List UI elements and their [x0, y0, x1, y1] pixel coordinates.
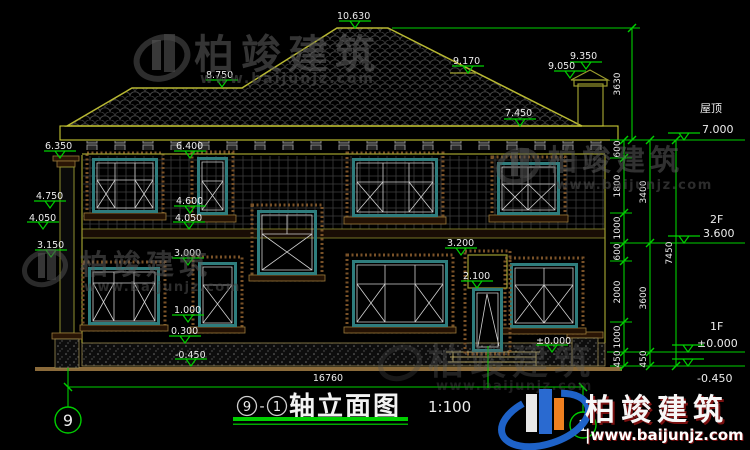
watermark-brand-right: 柏竣建筑: [548, 143, 684, 177]
roof-label: 屋顶: [700, 102, 722, 115]
level-marker-left-405: 4.050: [27, 213, 59, 229]
svg-text:6.400: 6.400: [176, 141, 203, 152]
dim-600b: 600: [613, 243, 623, 260]
title-axis-from: 9: [243, 400, 251, 415]
watermark-left: 柏竣建筑 www.baijunjz.com: [20, 246, 241, 295]
logo-url-text: |www.baijunjz.com: [585, 426, 744, 445]
dim-450a: 450: [613, 350, 623, 367]
dim-16760: 16760: [313, 373, 343, 384]
svg-text:7.450: 7.450: [505, 108, 532, 119]
watermark-url-top: www.baijunjz.com: [200, 71, 375, 87]
svg-text:4.750: 4.750: [36, 191, 63, 202]
svg-text:4.050: 4.050: [175, 213, 202, 224]
svg-text:9.170: 9.170: [453, 56, 480, 67]
cad-elevation-drawing: 3630 600 1800 1000 600 2000 1000 450 340…: [0, 0, 750, 450]
eave-fascia: [60, 126, 618, 140]
svg-text:0.300: 0.300: [171, 326, 198, 337]
dim-450b: 450: [639, 350, 649, 367]
window-1f-right: [502, 258, 586, 334]
level-marker-col-capital: 6.350: [44, 141, 76, 158]
level-marker-2f: 2F 3.600: [668, 213, 735, 243]
watermark-brand-bottom: 柏竣建筑: [428, 342, 596, 383]
window-1f-center: [344, 255, 456, 333]
level-marker-1f: 1F ±0.000: [672, 320, 738, 352]
level-marker-roof-right: 屋顶 7.000: [668, 102, 734, 140]
watermark-brand-left: 柏竣建筑: [80, 248, 212, 281]
drawing-canvas: 3630 600 1800 1000 600 2000 1000 450 340…: [0, 0, 750, 450]
svg-text:4.050: 4.050: [29, 213, 56, 224]
belt-course-band: [82, 229, 605, 238]
svg-text:4.600: 4.600: [176, 196, 203, 207]
title-dash: -: [259, 399, 264, 415]
level-marker-ground-right: -0.450: [672, 359, 732, 385]
svg-text:10.630: 10.630: [337, 11, 370, 22]
svg-text:3.200: 3.200: [447, 238, 474, 249]
chimney: [571, 70, 608, 126]
logo-tower-blue: [539, 389, 552, 434]
entry-door: [465, 251, 510, 354]
f2-level-text: 3.600: [703, 227, 735, 240]
dim-1000a: 1000: [613, 216, 623, 239]
level-marker-ridge: 10.630: [337, 11, 371, 28]
svg-text:-0.450: -0.450: [175, 350, 206, 361]
f2-label: 2F: [710, 213, 723, 226]
level-marker-win2-top: 6.400: [174, 141, 206, 158]
watermark-top: 柏竣建筑 www.baijunjz.com: [131, 30, 382, 87]
grid-axis-9: 9: [63, 411, 73, 430]
dim-3630: 3630: [613, 72, 623, 95]
grid-bubble-left: 9: [55, 407, 81, 433]
level-marker-plinth: 0.300: [169, 326, 201, 343]
dim-7450: 7450: [665, 241, 675, 264]
watermark-url-left: www.baijunjz.com: [84, 280, 241, 295]
title-axis-to: 1: [273, 400, 281, 415]
svg-text:2.100: 2.100: [463, 271, 490, 282]
f1-label: 1F: [710, 320, 723, 333]
svg-text:6.350: 6.350: [45, 141, 72, 152]
ground-level-text: -0.450: [697, 372, 732, 385]
dim-chain-lines: [624, 28, 676, 366]
svg-text:1.000: 1.000: [174, 305, 201, 316]
dim-2000: 2000: [613, 280, 623, 303]
dim-1000b: 1000: [613, 325, 623, 348]
logo-tower-white: [526, 394, 537, 432]
watermark-url-right: www.baijunjz.com: [556, 178, 713, 193]
level-marker-door-trim: 3.200: [445, 238, 477, 255]
logo-brand-text: 柏竣建筑: [585, 393, 729, 428]
svg-text:9.050: 9.050: [548, 61, 575, 72]
dim-3600: 3600: [639, 286, 649, 309]
f1-level-text: ±0.000: [697, 337, 738, 350]
logo-tower-orange: [554, 398, 564, 430]
title-block: 9 - 1 轴立面图 1:100: [233, 391, 471, 425]
title-underline-thick: [233, 417, 408, 421]
title-underline-thin: [233, 424, 408, 426]
drawing-scale: 1:100: [428, 398, 471, 416]
roof-level-text: 7.000: [702, 123, 734, 136]
